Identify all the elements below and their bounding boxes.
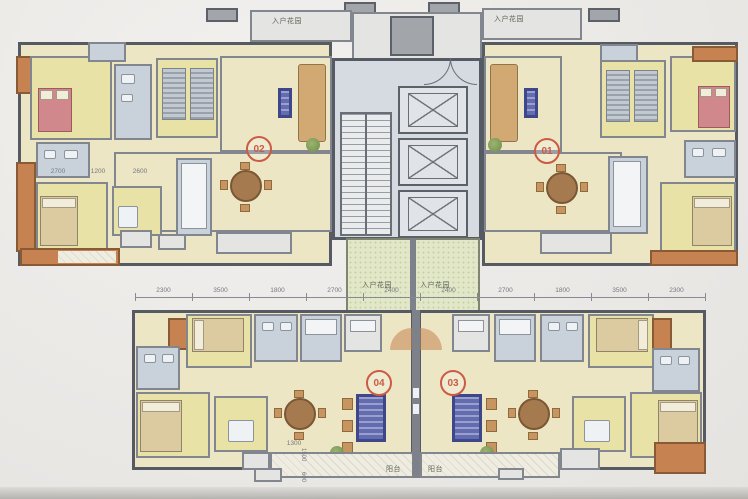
sink-icon [712, 148, 726, 157]
chair [536, 182, 544, 192]
roof-shaft-tab [588, 8, 620, 22]
balcony-tab [692, 46, 738, 62]
elevator-x [408, 197, 458, 232]
ac-platform [120, 230, 152, 248]
dim-label: 3500 [591, 287, 648, 294]
corner-balcony [654, 442, 706, 474]
desk [118, 206, 138, 228]
unit-badge-01: 01 [534, 138, 560, 164]
dim-label: 3500 [192, 287, 249, 294]
dim-label: 2300 [135, 287, 192, 294]
bed [190, 68, 214, 120]
wall-niche [413, 404, 419, 414]
bed [162, 68, 186, 120]
balcony-tab [652, 318, 672, 350]
tv-cabinet [278, 88, 292, 118]
toilet-icon [44, 150, 56, 159]
dim-label: 2700 [306, 287, 363, 294]
pillow [638, 320, 648, 350]
kitchen-counter [305, 319, 337, 335]
bathroom [540, 314, 584, 362]
balcony-label: 阳台 [386, 464, 401, 474]
dining-table [518, 398, 550, 430]
chair [240, 204, 250, 212]
party-wall [410, 238, 416, 312]
pillow [40, 90, 53, 100]
sink-icon [121, 94, 133, 102]
dim-label: 1300 [276, 440, 312, 447]
unit-badge-03: 03 [440, 370, 466, 396]
shaft [390, 16, 434, 56]
bathroom [684, 140, 736, 178]
roof-shaft-tab [206, 8, 238, 22]
bed [606, 70, 630, 122]
entry-step [560, 448, 600, 470]
sink-icon [280, 322, 292, 331]
unit-number: 02 [253, 144, 264, 155]
chair [556, 206, 566, 214]
entry-garden-left [346, 238, 412, 312]
desk [584, 420, 610, 442]
dim-label: 2400 [363, 287, 420, 294]
dim-tick [591, 293, 592, 301]
entry-garden-room-right [482, 8, 582, 40]
sofa [490, 64, 518, 142]
sink-icon [566, 322, 578, 331]
armchair [342, 420, 353, 432]
chair [294, 390, 304, 398]
chair [318, 408, 326, 418]
balcony-strip [16, 162, 36, 252]
plant-icon [306, 138, 320, 152]
unit-badge-04: 04 [366, 370, 392, 396]
entry-garden-label: 入户花园 [272, 16, 302, 26]
dining-table [284, 398, 316, 430]
dim-tick [363, 293, 364, 301]
pillow [694, 198, 730, 208]
dim-tick [135, 293, 136, 301]
unit-number: 03 [447, 378, 458, 389]
chair [580, 182, 588, 192]
chair [508, 408, 516, 418]
dim-tick [648, 293, 649, 301]
service-balcony [540, 232, 612, 254]
chair [274, 408, 282, 418]
kitchen-counter [499, 319, 531, 335]
appliance [350, 320, 376, 332]
elevator-x [408, 145, 458, 180]
chair [556, 164, 566, 172]
toilet-icon [144, 354, 156, 363]
dim-label: 2600 [122, 168, 158, 175]
dim-label-vertical: 1500 [300, 448, 306, 461]
floor-plan: 02 01 04 03 入户花园 入户花园 入户花园 入户花园 阳台 阳台 23… [0, 0, 748, 499]
ac-platform [498, 468, 524, 480]
ac-platform [254, 468, 282, 482]
chair [528, 390, 538, 398]
balcony-strip [650, 250, 738, 266]
dim-tick [705, 293, 706, 301]
elevator-x [408, 93, 458, 128]
desk [228, 420, 254, 442]
armchair [342, 398, 353, 410]
sink-icon [162, 354, 174, 363]
appliance [458, 320, 484, 332]
dining-table [546, 172, 578, 204]
dim-tick [477, 293, 478, 301]
dim-label: 1800 [534, 287, 591, 294]
ac-platform [158, 234, 186, 250]
chair [294, 432, 304, 440]
dim-label: 2700 [40, 168, 76, 175]
dim-tick [192, 293, 193, 301]
balcony-label: 阳台 [428, 464, 443, 474]
bathroom [136, 346, 180, 390]
elevator-icon [398, 190, 468, 238]
dim-tick [249, 293, 250, 301]
bathroom [254, 314, 298, 362]
dining-table [230, 170, 262, 202]
unit-badge-02: 02 [246, 136, 272, 162]
plant-icon [488, 138, 502, 152]
pillow [142, 402, 180, 412]
balcony-deck [58, 251, 116, 263]
chair [264, 180, 272, 190]
stair-rail [365, 114, 367, 234]
dim-tick [534, 293, 535, 301]
entry-garden-label: 入户花园 [494, 14, 524, 24]
kitchen-counter [181, 163, 207, 229]
toilet-icon [660, 356, 672, 365]
entry-garden-room-left [250, 10, 352, 42]
utility-room [88, 42, 126, 62]
wall-niche [413, 388, 419, 398]
dim-label-vertical: 600 [300, 472, 306, 482]
toilet-icon [692, 148, 704, 157]
chair [220, 180, 228, 190]
dim-label: 2400 [420, 287, 477, 294]
armchair [486, 398, 497, 410]
photo-edge-shadow [0, 487, 748, 499]
pillow [700, 88, 712, 97]
pillow [660, 402, 696, 412]
pillow [56, 90, 69, 100]
elevator-icon [398, 138, 468, 186]
toilet-icon [262, 322, 274, 331]
dim-tick [306, 293, 307, 301]
entry-garden-right [414, 238, 480, 312]
sink-icon [678, 356, 690, 365]
dim-label: 2700 [477, 287, 534, 294]
kitchen-counter [613, 161, 641, 227]
service-balcony [216, 232, 292, 254]
unit-number: 04 [373, 378, 384, 389]
toilet-icon [548, 322, 560, 331]
chair [240, 162, 250, 170]
dim-tick [420, 293, 421, 301]
elevator-icon [398, 86, 468, 134]
chair [528, 432, 538, 440]
pillow [194, 320, 204, 350]
rug [452, 394, 482, 442]
armchair [486, 420, 497, 432]
bathroom [652, 348, 700, 392]
dim-label: 1200 [80, 168, 116, 175]
bed [634, 70, 658, 122]
dim-label: 1800 [249, 287, 306, 294]
unit-number: 01 [541, 146, 552, 157]
dim-label: 2300 [648, 287, 705, 294]
pillow [42, 198, 76, 208]
rug [356, 394, 386, 442]
sink-icon [64, 150, 78, 159]
tv-cabinet [524, 88, 538, 118]
toilet-icon [121, 74, 135, 84]
pillow [715, 88, 727, 97]
sofa [298, 64, 326, 142]
floor-plan-photo: 02 01 04 03 入户花园 入户花园 入户花园 入户花园 阳台 阳台 23… [0, 0, 748, 499]
chair [552, 408, 560, 418]
